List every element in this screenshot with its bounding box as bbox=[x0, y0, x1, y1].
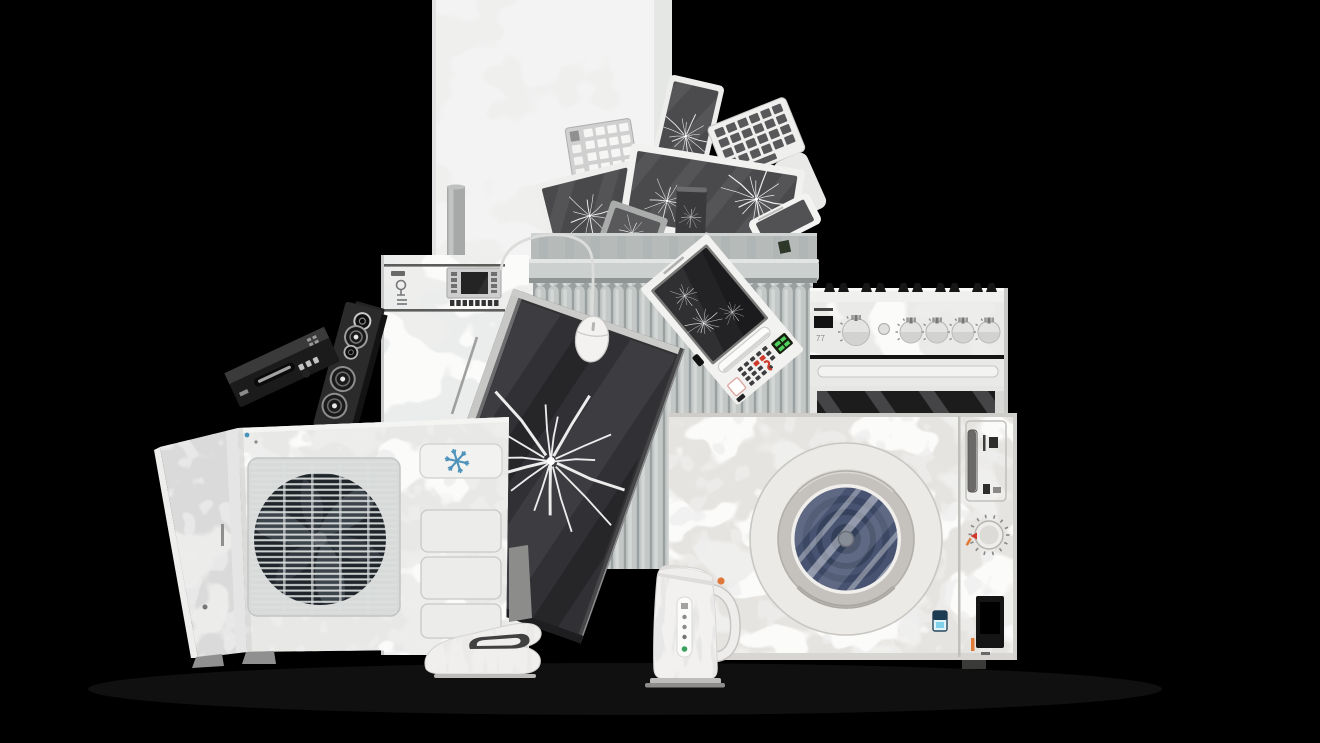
svg-text:77: 77 bbox=[816, 334, 825, 343]
